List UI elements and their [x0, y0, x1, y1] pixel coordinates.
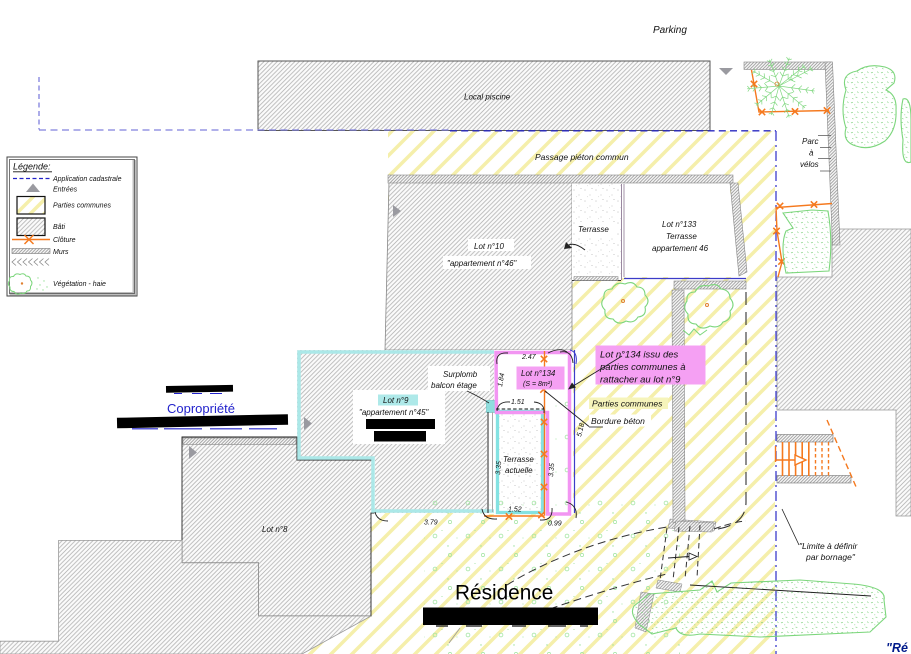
svg-text:3.35: 3.35	[495, 461, 503, 475]
svg-text:Parking: Parking	[653, 25, 687, 36]
svg-text:"Limite à définir: "Limite à définir	[799, 541, 858, 551]
svg-text:Passage piéton commun: Passage piéton commun	[535, 152, 629, 162]
svg-text:2.47: 2.47	[521, 354, 537, 361]
svg-text:Bordure béton: Bordure béton	[591, 416, 645, 426]
svg-text:Local piscine: Local piscine	[464, 93, 511, 102]
svg-text:vélos: vélos	[800, 160, 819, 169]
svg-text:(S = 8m²): (S = 8m²)	[523, 381, 552, 388]
svg-text:Copropriété: Copropriété	[167, 401, 235, 416]
svg-text:Bâti: Bâti	[53, 224, 66, 231]
svg-text:Terrasse: Terrasse	[503, 455, 534, 464]
svg-text:Parties communes: Parties communes	[592, 399, 663, 409]
svg-text:par bornage": par bornage"	[805, 552, 856, 562]
svg-text:Lot n°8: Lot n°8	[262, 525, 288, 534]
svg-text:Parties communes: Parties communes	[53, 203, 111, 210]
svg-text:3.79: 3.79	[424, 520, 438, 527]
svg-text:Lot n°9: Lot n°9	[383, 396, 409, 405]
svg-text:Terrasse: Terrasse	[578, 225, 609, 234]
svg-text:Surplomb: Surplomb	[443, 370, 478, 379]
svg-text:rattacher au lot n°9: rattacher au lot n°9	[600, 375, 681, 386]
svg-text:Entrées: Entrées	[53, 187, 78, 194]
svg-text:parties communes à: parties communes à	[599, 362, 686, 373]
svg-text:à: à	[809, 149, 814, 158]
svg-text:Clôture: Clôture	[53, 237, 76, 244]
svg-text:0.99: 0.99	[548, 521, 562, 528]
svg-text:"appartement n°46": "appartement n°46"	[447, 259, 518, 268]
svg-text:appartement 46: appartement 46	[652, 244, 709, 253]
svg-text:actuelle: actuelle	[505, 466, 533, 475]
svg-text:"appartement n°45": "appartement n°45"	[359, 408, 430, 417]
svg-text:1.51: 1.51	[511, 399, 525, 406]
svg-text:"Ré: "Ré	[886, 641, 908, 654]
svg-text:Lot n°134 issu des: Lot n°134 issu des	[600, 350, 679, 361]
svg-text:Végétation - haie: Végétation - haie	[53, 281, 106, 288]
svg-text:Murs: Murs	[53, 249, 69, 256]
svg-text:Légende:: Légende:	[13, 162, 51, 172]
svg-text:Application cadastrale: Application cadastrale	[52, 176, 122, 183]
svg-text:balcon étage: balcon étage	[431, 381, 477, 390]
svg-text:Lot n°134: Lot n°134	[521, 369, 556, 378]
svg-text:3.35: 3.35	[548, 463, 556, 477]
svg-text:Lot n°10: Lot n°10	[474, 242, 504, 251]
svg-text:Parc: Parc	[802, 137, 818, 146]
svg-text:Terrasse: Terrasse	[666, 232, 697, 241]
svg-text:Résidence: Résidence	[455, 582, 553, 605]
svg-text:1.52: 1.52	[508, 507, 522, 514]
svg-text:Lot n°133: Lot n°133	[662, 220, 697, 229]
